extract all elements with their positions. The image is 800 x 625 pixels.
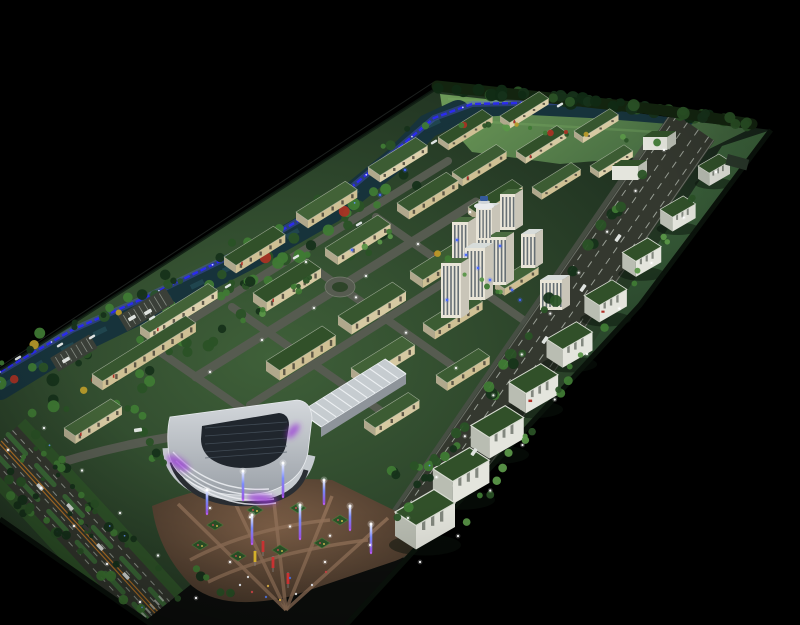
column-tip-light [242, 470, 245, 473]
person-figure [265, 596, 267, 598]
blue-led [489, 279, 491, 281]
column-tip-light [323, 479, 326, 482]
person-figure [295, 593, 297, 595]
street-light [417, 243, 419, 245]
column-base-glow [349, 529, 351, 531]
street-light [407, 517, 409, 519]
column-tip-light [370, 523, 373, 526]
column-tip-light [349, 505, 352, 508]
vertical-banner [272, 557, 275, 568]
street-light [663, 149, 665, 151]
glowing-light-column [282, 463, 285, 497]
person-figure [279, 599, 281, 601]
blue-led [465, 254, 467, 256]
street-light [369, 544, 371, 546]
column-base-glow [370, 552, 372, 554]
street-light [435, 476, 437, 478]
street-light [139, 601, 141, 603]
blue-led [456, 239, 458, 241]
street-light [40, 487, 42, 489]
person-figure [325, 571, 327, 573]
street-light [455, 367, 457, 369]
street-light [469, 211, 471, 213]
street-light [229, 561, 231, 563]
person-figure [311, 584, 313, 586]
column-base-glow [242, 499, 244, 501]
street-light [606, 231, 608, 233]
street-light [586, 353, 588, 355]
street-light [81, 469, 83, 471]
street-light [289, 525, 291, 527]
glowing-light-column [323, 480, 326, 504]
street-light [209, 507, 211, 509]
street-light [329, 535, 331, 537]
glowing-light-column [299, 505, 302, 539]
street-light [650, 262, 652, 264]
street-light [119, 512, 121, 514]
column-tip-light [282, 462, 285, 465]
street-light [618, 307, 620, 309]
glowing-light-column [206, 490, 209, 514]
street-light [457, 535, 459, 537]
photo-frame [0, 0, 800, 625]
street-light [365, 275, 367, 277]
street-light [464, 435, 466, 437]
column-base-glow [206, 513, 208, 515]
street-light [73, 525, 75, 527]
street-light [313, 307, 315, 309]
vertical-banner [262, 541, 265, 552]
street-light [521, 353, 523, 355]
blue-led [379, 194, 381, 196]
blue-led [404, 169, 406, 171]
person-figure [239, 584, 241, 586]
glowing-light-column [242, 471, 245, 500]
column-tip-light [299, 504, 302, 507]
glowing-light-column [370, 524, 373, 553]
street-light [521, 444, 523, 446]
street-light [355, 296, 357, 298]
scale-model-photo [0, 0, 800, 625]
blue-led [511, 289, 513, 291]
street-light [305, 261, 307, 263]
vertical-banner [254, 551, 257, 562]
street-light [261, 339, 263, 341]
street-light [419, 561, 421, 563]
vignette-overlay [0, 0, 800, 625]
column-base-glow [323, 503, 325, 505]
street-light [634, 190, 636, 192]
street-light [106, 563, 108, 565]
street-light [324, 561, 326, 563]
person-figure [247, 576, 249, 578]
column-base-glow [299, 538, 301, 540]
column-tip-light [206, 489, 209, 492]
street-light [554, 398, 556, 400]
glowing-light-column [349, 506, 352, 530]
street-light [249, 516, 251, 518]
street-light [683, 216, 685, 218]
street-light [489, 489, 491, 491]
blue-led [477, 267, 479, 269]
blue-led [499, 245, 501, 247]
street-light [157, 554, 159, 556]
street-light [715, 171, 717, 173]
blue-led [351, 249, 353, 251]
street-light [195, 597, 197, 599]
column-base-glow [282, 496, 284, 498]
person-figure [251, 591, 253, 593]
street-light [405, 332, 407, 334]
street-light [43, 427, 45, 429]
column-base-glow [251, 543, 253, 545]
person-figure [289, 577, 291, 579]
street-light [549, 312, 551, 314]
street-light [7, 449, 9, 451]
person-figure [267, 585, 269, 587]
blue-led [446, 299, 448, 301]
street-light [578, 272, 580, 274]
blue-led [519, 299, 521, 301]
street-light [209, 371, 211, 373]
street-light [492, 394, 494, 396]
